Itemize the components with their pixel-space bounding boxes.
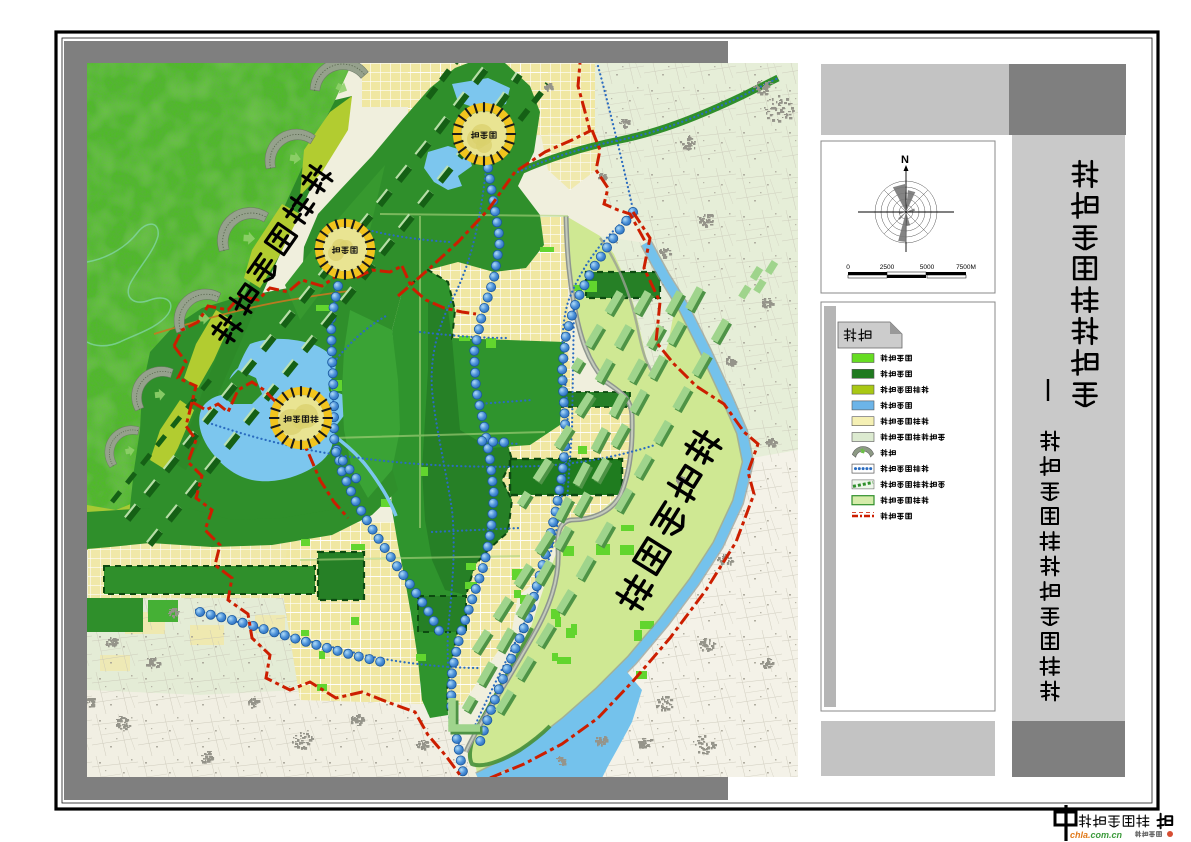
svg-text:2500: 2500 (880, 264, 895, 271)
svg-text:chla.com.cn: chla.com.cn (1070, 830, 1123, 840)
svg-text:0: 0 (846, 264, 850, 271)
svg-text:N: N (901, 154, 909, 166)
svg-text:5000: 5000 (920, 264, 935, 271)
svg-text:7500M: 7500M (956, 264, 976, 271)
